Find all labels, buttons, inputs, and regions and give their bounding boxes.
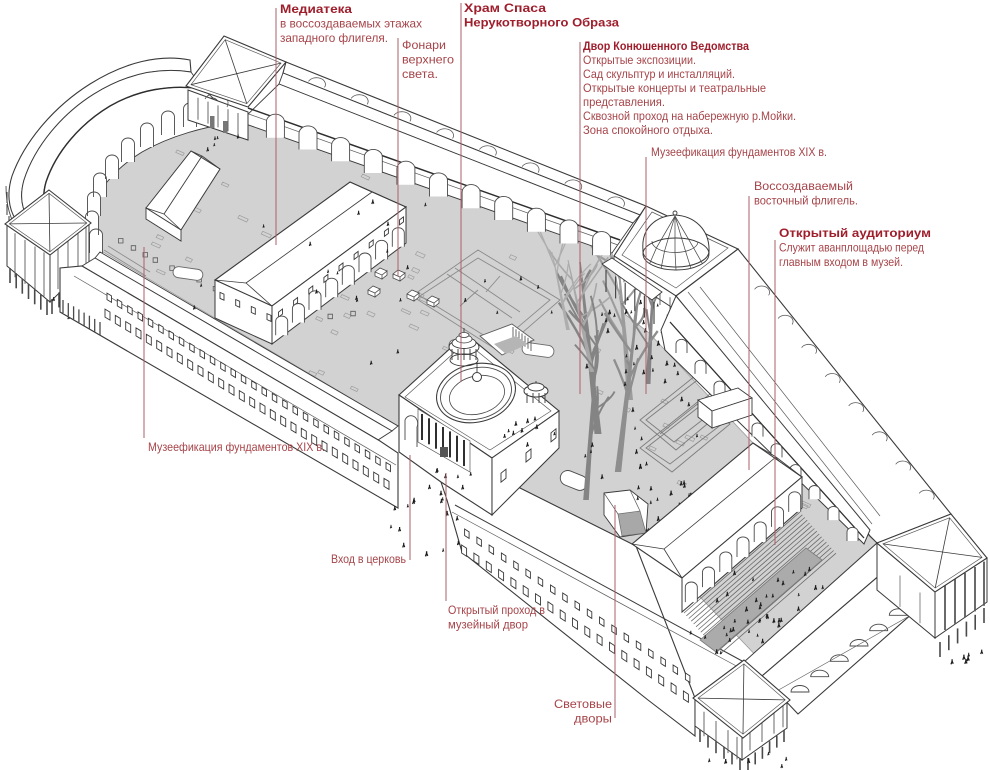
svg-text:Двор Конюшенного Ведомства: Двор Конюшенного Ведомства (583, 39, 749, 53)
svg-text:Сквозной проход на набережную: Сквозной проход на набережную р.Мойки. (583, 109, 796, 123)
svg-text:главным входом в музей.: главным входом в музей. (779, 255, 903, 269)
svg-text:Храм Спаса: Храм Спаса (464, 1, 546, 15)
svg-text:Фонари: Фонари (402, 38, 446, 52)
svg-text:Световые: Световые (554, 697, 612, 711)
svg-text:музейный двор: музейный двор (448, 618, 528, 632)
svg-text:Музеефикация фундаментов XIX в: Музеефикация фундаментов XIX в. (651, 145, 827, 159)
svg-text:представления.: представления. (583, 95, 665, 109)
svg-text:Открытые концерты и театральны: Открытые концерты и театральные (583, 81, 766, 95)
svg-text:западного флигеля.: западного флигеля. (280, 31, 388, 45)
svg-text:Открытый аудиториум: Открытый аудиториум (779, 226, 931, 240)
svg-text:в воссоздаваемых этажах: в воссоздаваемых этажах (280, 17, 423, 31)
svg-text:Нерукотворного Образа: Нерукотворного Образа (464, 16, 619, 30)
svg-text:Зона спокойного отдыха.: Зона спокойного отдыха. (583, 123, 713, 137)
svg-text:Служит аванплощадью перед: Служит аванплощадью перед (779, 241, 924, 255)
svg-text:Медиатека: Медиатека (280, 2, 352, 16)
svg-text:Открытый проход в: Открытый проход в (448, 603, 545, 617)
svg-text:Музеефикация фундаментов XIX в: Музеефикация фундаментов XIX в. (148, 440, 325, 454)
svg-text:Сад скульптур и инсталляций.: Сад скульптур и инсталляций. (583, 67, 735, 81)
svg-text:света.: света. (402, 67, 438, 81)
svg-text:верхнего: верхнего (402, 53, 454, 67)
svg-text:Открытые экспозиции.: Открытые экспозиции. (583, 53, 696, 67)
svg-text:дворы: дворы (574, 712, 612, 726)
svg-text:восточный флигель.: восточный флигель. (754, 194, 858, 208)
svg-text:Воссоздаваемый: Воссоздаваемый (754, 179, 853, 193)
svg-text:Вход в церковь: Вход в церковь (331, 552, 406, 566)
